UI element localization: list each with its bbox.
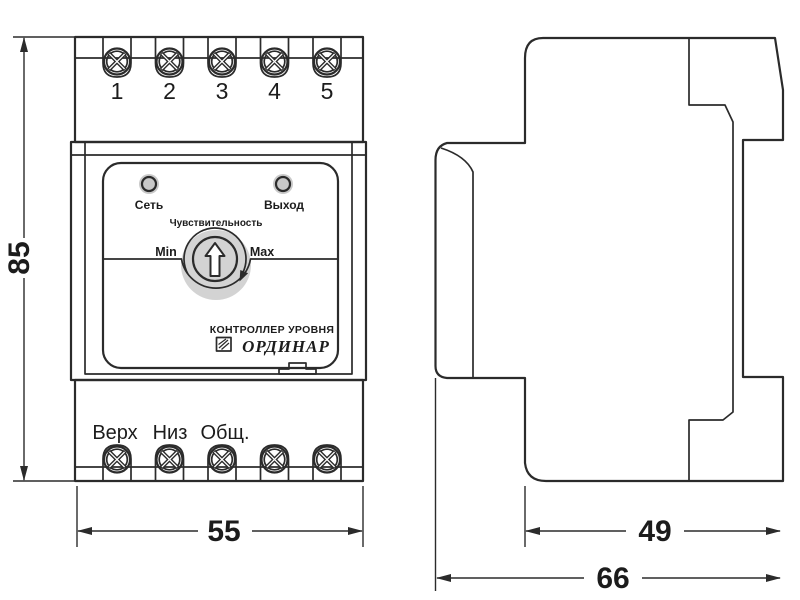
screw-icon [104, 447, 130, 473]
terminal-number: 3 [216, 78, 229, 104]
device-type-label: КОНТРОЛЛЕР УРОВНЯ [210, 324, 334, 336]
screw-icon [157, 447, 183, 473]
dimension-body-depth: 49 [525, 486, 781, 548]
dimension-total-depth: 66 [436, 378, 782, 595]
screw-icon [209, 49, 235, 75]
bottom-terminal-screws [104, 447, 340, 473]
terminal-label: Общ. [200, 422, 249, 444]
dim-arrow-icon [20, 37, 28, 52]
dimensions: 85 55 49 66 [3, 37, 781, 595]
front-view: 1 2 3 4 5 Сеть Выход Чувствительность Mi… [71, 37, 366, 481]
terminal-number: 1 [111, 78, 124, 104]
mid-step-right [352, 142, 366, 155]
dimension-height: 85 [3, 37, 74, 481]
dim-arrow-icon [436, 574, 451, 582]
dim-arrow-icon [766, 527, 781, 535]
terminal-label: Верх [92, 422, 137, 444]
terminal-number: 2 [163, 78, 176, 104]
terminal-number: 4 [268, 78, 281, 104]
brand-label: ОРДИНАР [242, 337, 330, 356]
terminal-label: Низ [153, 422, 188, 444]
dim-height-value: 85 [3, 241, 36, 274]
screw-icon [262, 447, 288, 473]
bottom-terminal-slots [103, 445, 341, 481]
dim-total-depth-value: 66 [596, 562, 629, 595]
power-led-label: Сеть [135, 198, 163, 212]
screw-icon [314, 49, 340, 75]
screw-icon [314, 447, 340, 473]
dim-arrow-icon [348, 527, 363, 535]
dim-body-depth-value: 49 [638, 515, 671, 548]
dim-arrow-icon [77, 527, 92, 535]
brand-logo-icon [217, 338, 232, 352]
din-clip-inner-edge [441, 148, 473, 377]
terminal-number: 5 [321, 78, 334, 104]
screw-icon [104, 49, 130, 75]
max-label: Max [250, 245, 274, 259]
screw-icon [157, 49, 183, 75]
bottom-terminal-labels: Верх Низ Общ. [92, 422, 249, 444]
mid-step-left [71, 142, 85, 155]
dim-width-value: 55 [207, 515, 240, 548]
top-terminal-numbers: 1 2 3 4 5 [111, 78, 334, 104]
dim-arrow-icon [20, 466, 28, 481]
dim-arrow-icon [766, 574, 781, 582]
dimension-width: 55 [77, 486, 363, 548]
output-led-label: Выход [264, 198, 304, 212]
dim-arrow-icon [525, 527, 540, 535]
min-label: Min [155, 245, 177, 259]
screw-icon [262, 49, 288, 75]
screw-icon [209, 447, 235, 473]
top-terminal-screws [104, 49, 340, 75]
rail-slot-lines [689, 38, 733, 481]
technical-drawing: 1 2 3 4 5 Сеть Выход Чувствительность Mi… [0, 0, 800, 600]
side-view [436, 38, 784, 481]
